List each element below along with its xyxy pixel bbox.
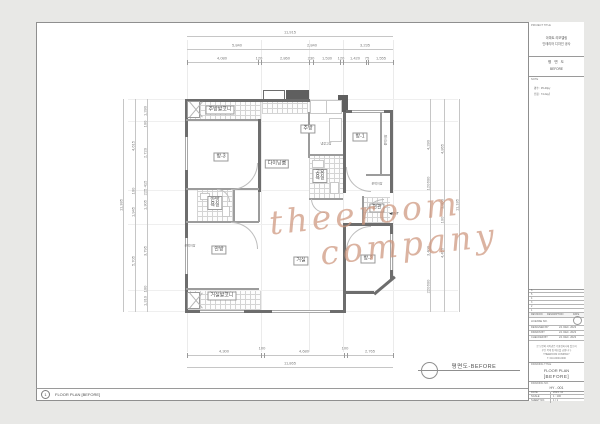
top-balcony-floor: [262, 100, 308, 114]
dimension-line: [135, 99, 136, 312]
bath-fixture: [222, 206, 230, 217]
kitchen-counter-line: [326, 100, 327, 114]
dimension-label: 1,305: [143, 200, 148, 210]
utility-box: [187, 292, 200, 309]
notice-center2: T. 010-0000-0000: [529, 357, 584, 360]
room-label-room3: 방-3: [213, 153, 228, 162]
room-label-line: 욕실: [315, 176, 324, 181]
room-label-dining: 다이닝룸: [265, 160, 289, 169]
dimension-label: 230: [308, 56, 315, 61]
dimension-tick: [393, 353, 394, 358]
dimension-label: 2,765: [365, 349, 375, 354]
wall: [309, 154, 343, 156]
closet-label: 붙박이장: [385, 134, 388, 145]
dimension-label: 11,385: [119, 199, 124, 211]
dimension-label: 2,720: [143, 148, 148, 158]
window: [185, 137, 188, 170]
dimension-line: [187, 355, 393, 356]
guide-line: [128, 290, 458, 291]
closet-label: 붙박이장: [371, 183, 382, 186]
title-block: PROJECT TITLE 아파트 리모델링 인테리어 디자인 공사 평 면 도…: [528, 22, 584, 401]
project-title-label: PROJECT TITLE: [531, 24, 551, 27]
wall: [233, 189, 235, 222]
credit-date: 24. DEC. 2023: [559, 337, 576, 340]
guide-line: [128, 121, 458, 122]
wall: [390, 110, 393, 193]
note-line1: 평수 : 35-40py: [534, 88, 550, 91]
dimension-label: 4,300: [219, 349, 229, 354]
wall: [186, 288, 259, 290]
window: [352, 110, 384, 113]
dimension-label: 120: [338, 56, 345, 61]
drawing-no-value: HY - 001: [529, 386, 584, 390]
dimension-label: 4,865: [440, 144, 445, 154]
credit-role: CHECKED BY: [531, 337, 548, 340]
dimension-label: 75: [365, 56, 369, 61]
dimension-label: 4,680: [299, 349, 309, 354]
notice-center1: THEEROOM COMPANY: [529, 353, 584, 356]
dimension-label: 1,280: [143, 106, 148, 116]
room-label-kitchen: 주방: [300, 125, 315, 134]
dimension-label: 3,795: [143, 246, 148, 256]
dimension-label: 4,615: [131, 141, 136, 151]
drawing-title-line2: [BEFORE]: [529, 374, 584, 379]
closet-label: 붙박이장: [184, 245, 195, 248]
room-label-master-bath: 안방욕실: [207, 196, 222, 210]
dimension-tick: [343, 60, 344, 65]
stage-line1: 평 면 도: [529, 60, 584, 65]
dimension-label: 415: [143, 181, 148, 188]
dimension-label: 100: [143, 121, 148, 128]
wall: [261, 99, 310, 102]
floor-plan-sheet-view: { "colors":{"background":"#e8e8e6","wall…: [0, 0, 600, 424]
dimension-label: 1,420: [350, 56, 360, 61]
dimension-label: 4,080: [217, 56, 227, 61]
meta-key: SHEET NO.: [531, 400, 545, 403]
dimension-line: [187, 36, 393, 37]
utility-box: [187, 101, 200, 118]
credit-role: DRAWN BY: [531, 332, 545, 335]
dimension-tick: [261, 353, 262, 358]
dimension-label: 11,865: [284, 361, 296, 366]
stamp-circle: [573, 316, 582, 325]
dimension-label: 2,860: [280, 56, 290, 61]
dimension-label: 4,280: [426, 140, 431, 150]
dimension-label: 100: [131, 188, 136, 195]
dimension-tick: [261, 60, 262, 65]
credit-date: 24. DEC. 2023: [559, 332, 576, 335]
dimension-tick: [344, 353, 345, 358]
dimension-tick: [393, 60, 394, 65]
dimension-tick: [264, 353, 265, 358]
wall: [346, 291, 374, 294]
wall: [185, 99, 188, 313]
dimension-label: 225: [143, 189, 148, 196]
dimension-line: [187, 49, 393, 50]
guide-line: [261, 40, 262, 352]
credit-role: DESIGNED BY: [531, 327, 549, 330]
dimension-label: 1,945: [131, 207, 136, 217]
fridge-cabinet: [329, 118, 342, 142]
window: [272, 310, 330, 313]
stage-line2: BEFORE: [529, 67, 584, 71]
dimension-label: 120: [256, 56, 263, 61]
dimension-label: 100: [259, 346, 266, 351]
dimension-label: 600: [426, 280, 431, 287]
dimension-label: 2,840: [307, 43, 317, 48]
note-line2: 전용 : 74.22㎡: [534, 94, 550, 97]
dimension-label: 3,235: [360, 43, 370, 48]
project-line2: 인테리어 디자인 공사: [529, 41, 584, 46]
wall: [186, 119, 261, 121]
dimension-label: 600: [426, 177, 431, 184]
footer-label: FLOOR PLAN [BEFORE]: [55, 392, 100, 397]
meta-value: 1 / 1: [553, 400, 558, 403]
plan-caption: 평면도-BEFORE: [452, 362, 497, 370]
wall: [258, 119, 261, 192]
dimension-label: 1,530: [322, 56, 332, 61]
drawing-no-label: DRAWING NO.: [531, 382, 549, 385]
revision-header: REVISION: [531, 314, 542, 316]
dimension-tick: [187, 353, 188, 358]
credit-row: CHECKED BY 24. DEC. 2023: [529, 336, 584, 341]
dimension-label: 220: [426, 287, 431, 294]
window: [200, 310, 244, 313]
meta-row: SHEET NO. 1 / 1: [529, 399, 584, 403]
dimension-label: 100: [143, 286, 148, 293]
license-label: LICENSE NO.: [531, 321, 547, 324]
dimension-tick: [309, 60, 310, 65]
credit-date: 24. DEC. 2023: [559, 327, 576, 330]
dimension-label: 11,915: [284, 30, 296, 35]
footer-divider: [36, 388, 528, 389]
drawing-title-line1: FLOOR PLAN: [529, 368, 584, 373]
dimension-tick: [187, 60, 188, 65]
wall: [258, 192, 260, 222]
caption-underline: [418, 370, 520, 371]
wall: [308, 112, 310, 158]
bath-fixture: [330, 182, 339, 194]
drawing-title-label: DRAWING TITLE: [531, 363, 551, 366]
notice-line2: 무단 복제 및 배포를 금합니다.: [529, 348, 584, 352]
dimension-tick: [347, 353, 348, 358]
room-label-room1: 방-1: [352, 133, 367, 142]
dimension-tick: [258, 60, 259, 65]
dimension-tick: [313, 60, 314, 65]
dimension-tick: [366, 60, 367, 65]
room-label-line: 욕실: [210, 203, 219, 208]
dimension-tick: [340, 60, 341, 65]
room-label-living-balcony: 거실발코니: [207, 292, 236, 301]
note-label: NOTE: [531, 78, 538, 81]
dimension-line: [187, 62, 393, 63]
room-label-common-bath: 공용욕실: [312, 169, 327, 183]
room-label-kitchen-balcony: 주방발코니: [205, 106, 234, 115]
dimension-label: 5,840: [232, 43, 242, 48]
dimension-label: 5,705: [131, 256, 136, 266]
room-label-master: 안방: [211, 246, 226, 255]
title-block-divider: [529, 56, 584, 57]
dimension-label: 1,555: [376, 56, 386, 61]
dimension-label: 100: [342, 346, 349, 351]
wall: [380, 113, 382, 175]
dimension-line: [187, 367, 393, 368]
footer-number-circle: 1: [41, 390, 50, 399]
room-label-living: 거실: [293, 257, 308, 266]
wall: [186, 221, 259, 223]
revision-header: DESCRIPTION: [547, 314, 563, 316]
bath-fixture: [312, 160, 324, 168]
meta-column-divider: [550, 391, 551, 403]
dimension-tick: [368, 60, 369, 65]
dimension-label: 1,310: [143, 296, 148, 306]
fridge-label: 냉장고장: [320, 143, 331, 146]
project-line1: 아파트 리모델링: [529, 35, 584, 40]
title-block-divider: [529, 76, 584, 77]
